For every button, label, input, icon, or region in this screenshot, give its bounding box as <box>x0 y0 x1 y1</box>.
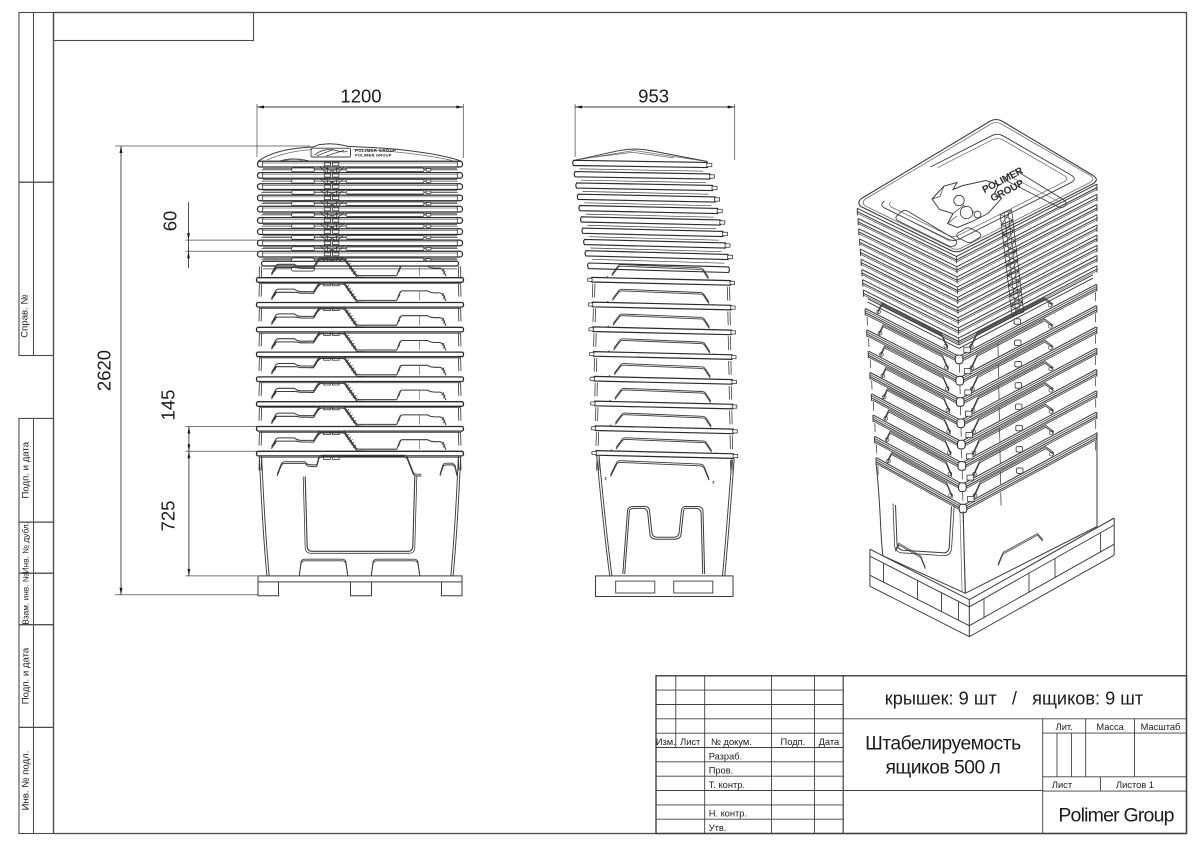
svg-text:2620: 2620 <box>94 350 115 391</box>
svg-text:Взам. инв. №: Взам. инв. № <box>21 573 31 625</box>
svg-text:№ докум.: № докум. <box>711 737 752 747</box>
svg-text:Справ. №: Справ. № <box>20 294 31 338</box>
svg-text:Лист: Лист <box>1052 780 1073 790</box>
svg-text:953: 953 <box>638 85 669 106</box>
svg-text:Дата: Дата <box>819 737 840 747</box>
svg-text:Подп. и дата: Подп. и дата <box>21 647 32 704</box>
svg-text:Листов 1: Листов 1 <box>1116 780 1154 790</box>
svg-text:Подп. и дата: Подп. и дата <box>21 441 32 498</box>
svg-text:145: 145 <box>158 390 179 421</box>
svg-text:60: 60 <box>160 211 181 232</box>
svg-text:Разраб.: Разраб. <box>709 751 742 761</box>
svg-text:Утв.: Утв. <box>709 823 727 833</box>
svg-text:Лит.: Лит. <box>1056 722 1073 732</box>
svg-text:1200: 1200 <box>340 85 381 106</box>
svg-text:Инв. № подл.: Инв. № подл. <box>21 751 32 811</box>
svg-text:Изм.: Изм. <box>656 737 676 747</box>
svg-text:Лист: Лист <box>680 737 701 747</box>
svg-text:Масса: Масса <box>1096 722 1124 732</box>
svg-text:POLIMER GROUP: POLIMER GROUP <box>355 153 392 158</box>
svg-text:Подп.: Подп. <box>781 737 806 747</box>
svg-text:725: 725 <box>158 501 179 532</box>
svg-text:Polimer Group: Polimer Group <box>1058 804 1174 826</box>
svg-text:Н. контр.: Н. контр. <box>709 809 747 819</box>
svg-text:Т. контр.: Т. контр. <box>709 780 745 790</box>
svg-text:Пров.: Пров. <box>709 766 734 776</box>
svg-text:ящиков 500 л: ящиков 500 л <box>885 758 1000 779</box>
svg-text:Штабелируемость: Штабелируемость <box>865 734 1021 755</box>
svg-text:Инв. № дубл.: Инв. № дубл. <box>21 522 31 573</box>
svg-text:крышек: 9 шт / ящиков: 9 ш: крышек: 9 шт / ящиков: 9 шт <box>885 689 1144 709</box>
svg-text:Масштаб: Масштаб <box>1141 722 1181 732</box>
